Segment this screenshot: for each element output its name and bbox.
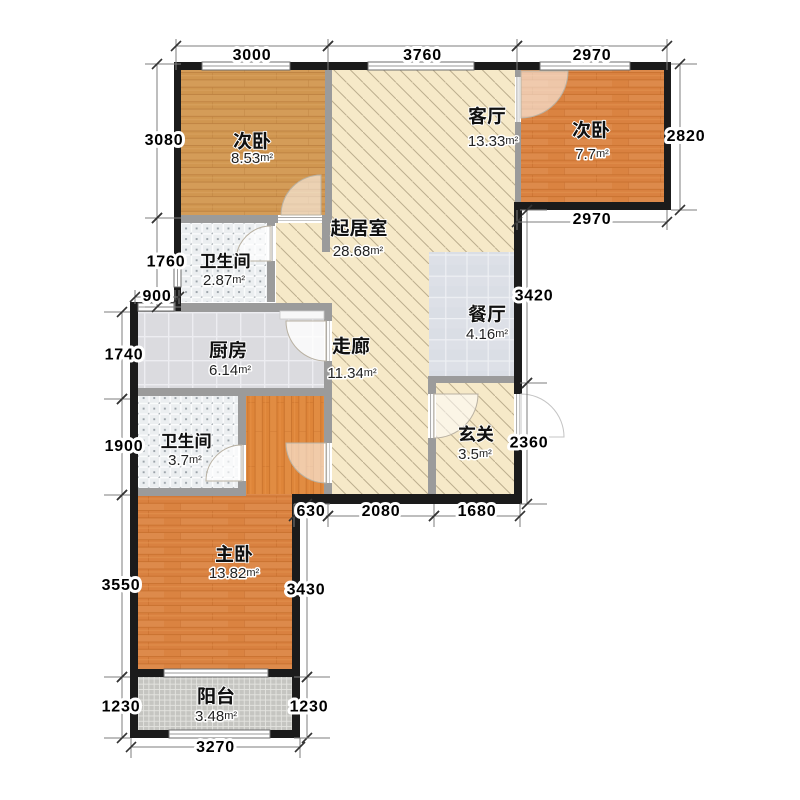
svg-text:630: 630 [296,503,325,520]
svg-text:3270: 3270 [196,739,235,756]
svg-text:1740: 1740 [105,347,144,364]
svg-text:1900: 1900 [105,438,144,455]
svg-text:1230: 1230 [290,699,329,716]
svg-text:900: 900 [142,288,171,305]
svg-text:1680: 1680 [458,503,497,520]
svg-text:3080: 3080 [145,132,184,149]
svg-text:3550: 3550 [102,577,141,594]
svg-text:2970: 2970 [573,211,612,228]
svg-text:1760: 1760 [147,254,186,271]
svg-text:1230: 1230 [102,699,141,716]
svg-text:3000: 3000 [233,47,272,64]
svg-text:2970: 2970 [573,47,612,64]
svg-text:3430: 3430 [287,582,326,599]
svg-text:2080: 2080 [362,503,401,520]
svg-text:2360: 2360 [510,435,549,452]
svg-text:3420: 3420 [515,288,554,305]
svg-text:3760: 3760 [403,47,442,64]
svg-text:2820: 2820 [667,128,706,145]
